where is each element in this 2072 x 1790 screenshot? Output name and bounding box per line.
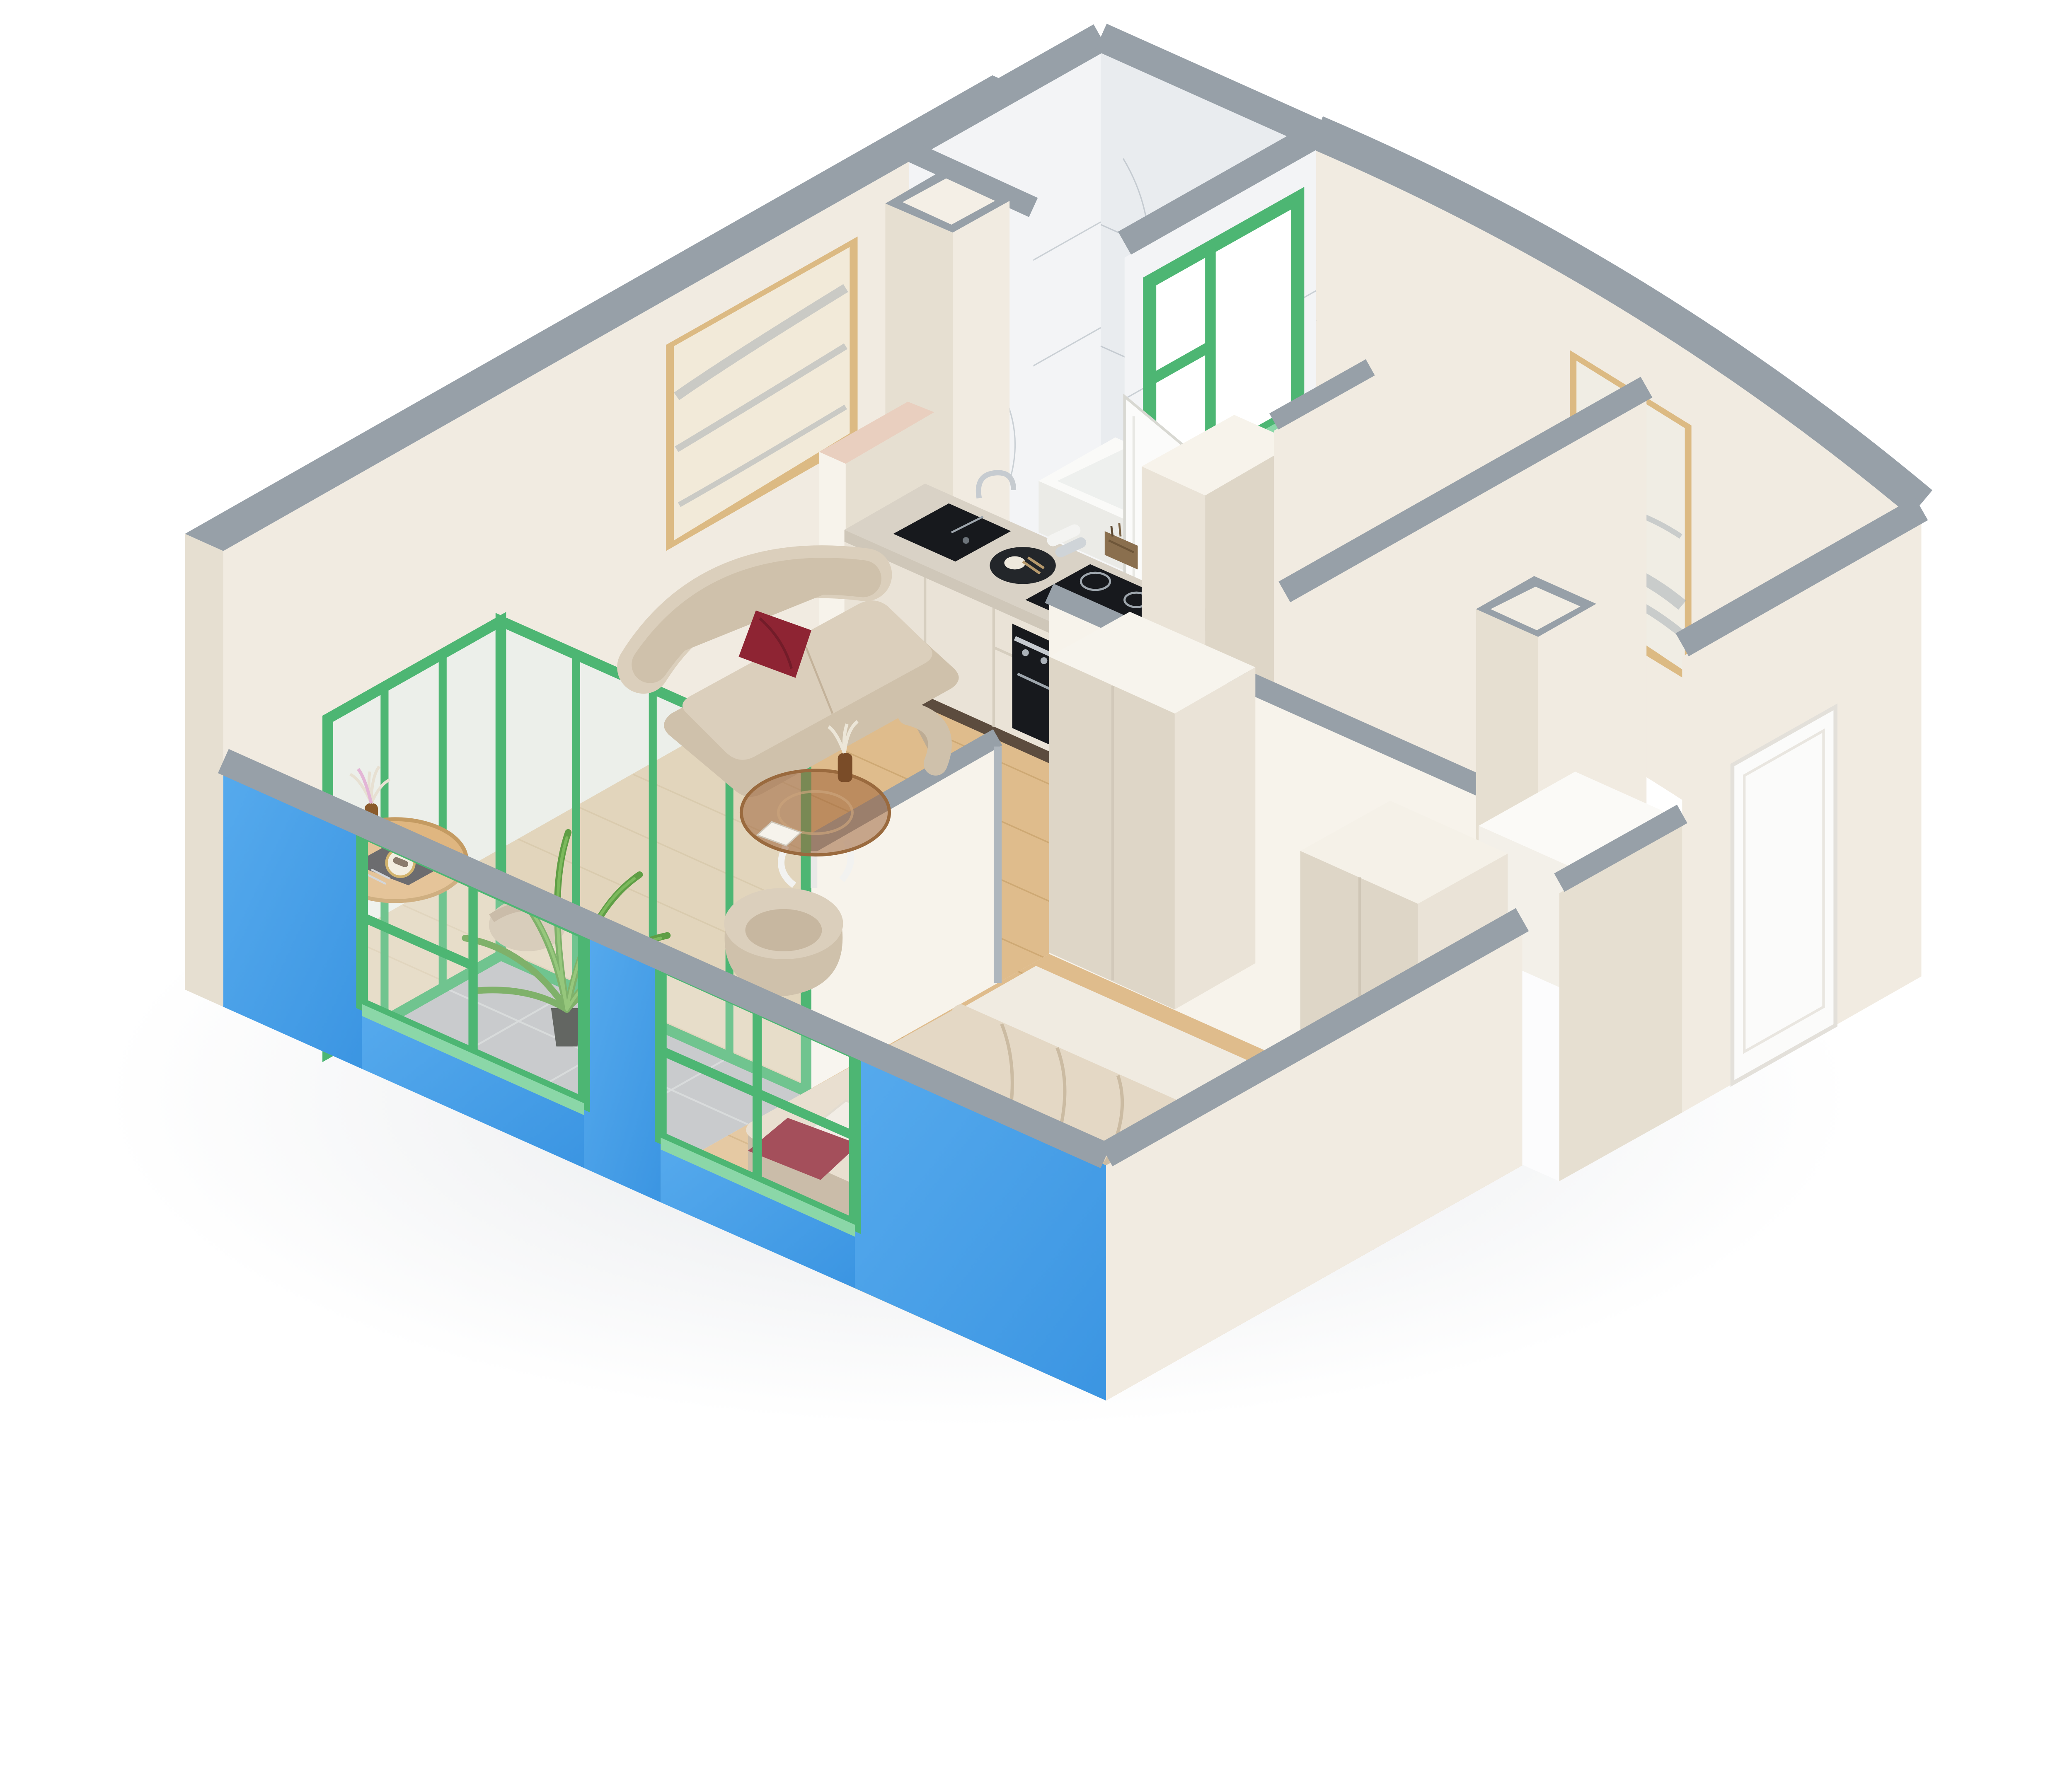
- render-canvas: [0, 0, 2072, 1554]
- entrance-door: [1732, 707, 1835, 1084]
- apartment-isometric-render: [0, 0, 2072, 1554]
- hall-wardrobe: [1049, 612, 1255, 1009]
- serving-tray: [990, 547, 1055, 584]
- glass-top: [741, 770, 889, 855]
